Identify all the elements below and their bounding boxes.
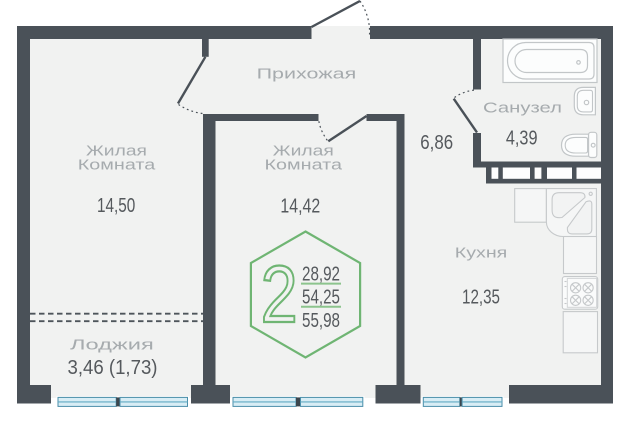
svg-text:Прихожая: Прихожая bbox=[257, 67, 357, 83]
svg-text:Кухня: Кухня bbox=[455, 246, 508, 262]
svg-text:28,92: 28,92 bbox=[302, 264, 340, 286]
svg-text:4,39: 4,39 bbox=[506, 128, 538, 150]
svg-text:6,86: 6,86 bbox=[420, 132, 453, 154]
svg-text:3,46 (1,73): 3,46 (1,73) bbox=[68, 357, 158, 379]
svg-text:14,50: 14,50 bbox=[97, 195, 135, 217]
svg-text:Санузел: Санузел bbox=[483, 101, 562, 117]
svg-text:Лоджия: Лоджия bbox=[70, 338, 154, 354]
svg-text:54,25: 54,25 bbox=[302, 287, 340, 309]
svg-text:Комната: Комната bbox=[78, 158, 157, 174]
svg-text:2: 2 bbox=[261, 249, 298, 340]
svg-text:55,98: 55,98 bbox=[302, 310, 340, 332]
svg-text:12,35: 12,35 bbox=[462, 287, 500, 309]
svg-text:14,42: 14,42 bbox=[280, 196, 320, 218]
svg-text:Комната: Комната bbox=[265, 158, 344, 174]
